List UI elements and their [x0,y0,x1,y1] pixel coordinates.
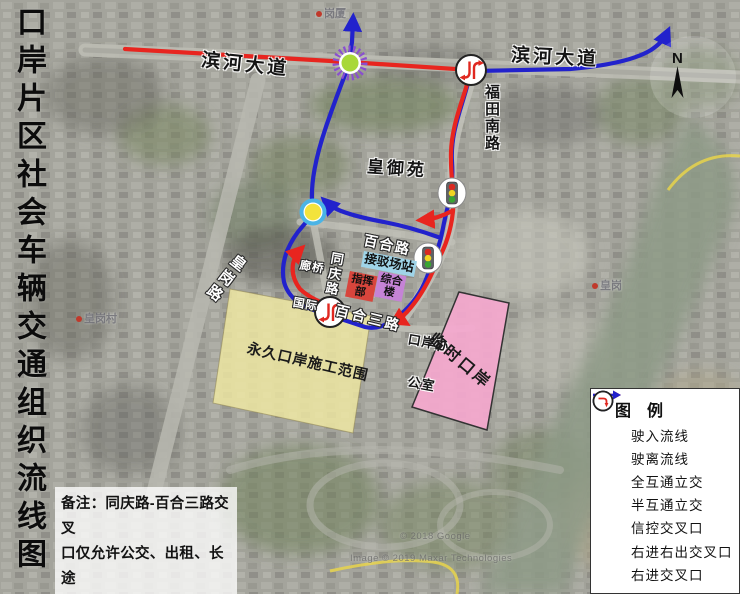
legend-item: 右进右出交叉口 [591,539,739,562]
entry-flow-lines [125,49,471,322]
port-traffic-flow-map: N 滨河大道 滨河大道 福田南路 皇岗路 同庆路 百合路 百合三路 皇御苑 廊桥… [0,0,740,594]
exit-flow-binhe-east [476,33,667,71]
permanent-port-construction-zone [213,289,371,433]
right-in-out-intersection-icon [315,297,345,327]
entry-flow-binhe-futian [125,49,471,322]
legend: 图 例 驶入流线 驶离流线 全互通立交 [590,388,740,594]
legend-item: 信控交叉口 [591,516,739,539]
temporary-port-zone [412,292,509,430]
legend-item: 全互通立交 [591,469,739,492]
command-post-box: 指挥 部 [345,271,377,302]
signal-intersection-icon [414,243,442,273]
half-interchange-icon [300,199,327,226]
legend-item: 驶离流线 [591,446,739,469]
north-arrow-icon [650,36,736,118]
legend-item: 驶入流线 [591,423,739,446]
compass: N [650,36,736,118]
note-line: 备注：同庆路-百合三路交叉 [61,492,233,542]
signal-intersection-icon [438,178,466,208]
note-line: 口仅允许公交、出租、长途 [61,542,233,592]
legend-item: 右进交叉口 [591,562,739,585]
note-box: 备注：同庆路-百合三路交叉 口仅允许公交、出租、长途 及指挥部工作人员车辆右转 … [55,487,237,594]
right-in-out-intersection-icon [456,55,486,85]
legend-title: 图 例 [615,397,739,421]
legend-item: 半互通立交 [591,493,739,516]
complex-building-box: 综合 楼 [374,271,406,302]
full-interchange-icon [336,49,364,77]
